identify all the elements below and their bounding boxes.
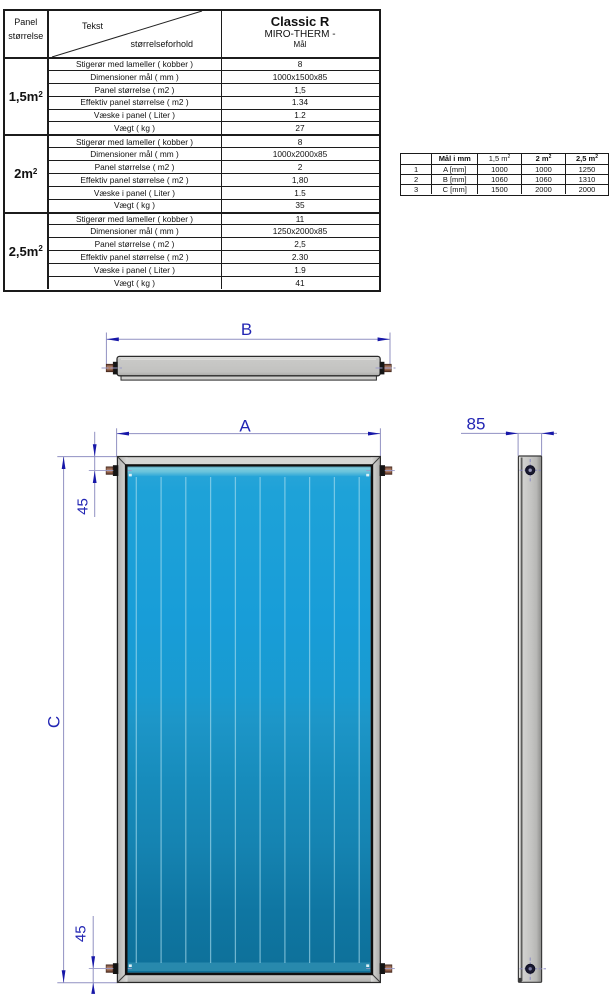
svg-text:85: 85 — [467, 415, 486, 434]
svg-text:45: 45 — [74, 498, 91, 515]
svg-text:C: C — [45, 716, 64, 728]
svg-text:45: 45 — [73, 925, 90, 942]
svg-text:B: B — [241, 320, 252, 339]
svg-text:A: A — [239, 416, 251, 435]
